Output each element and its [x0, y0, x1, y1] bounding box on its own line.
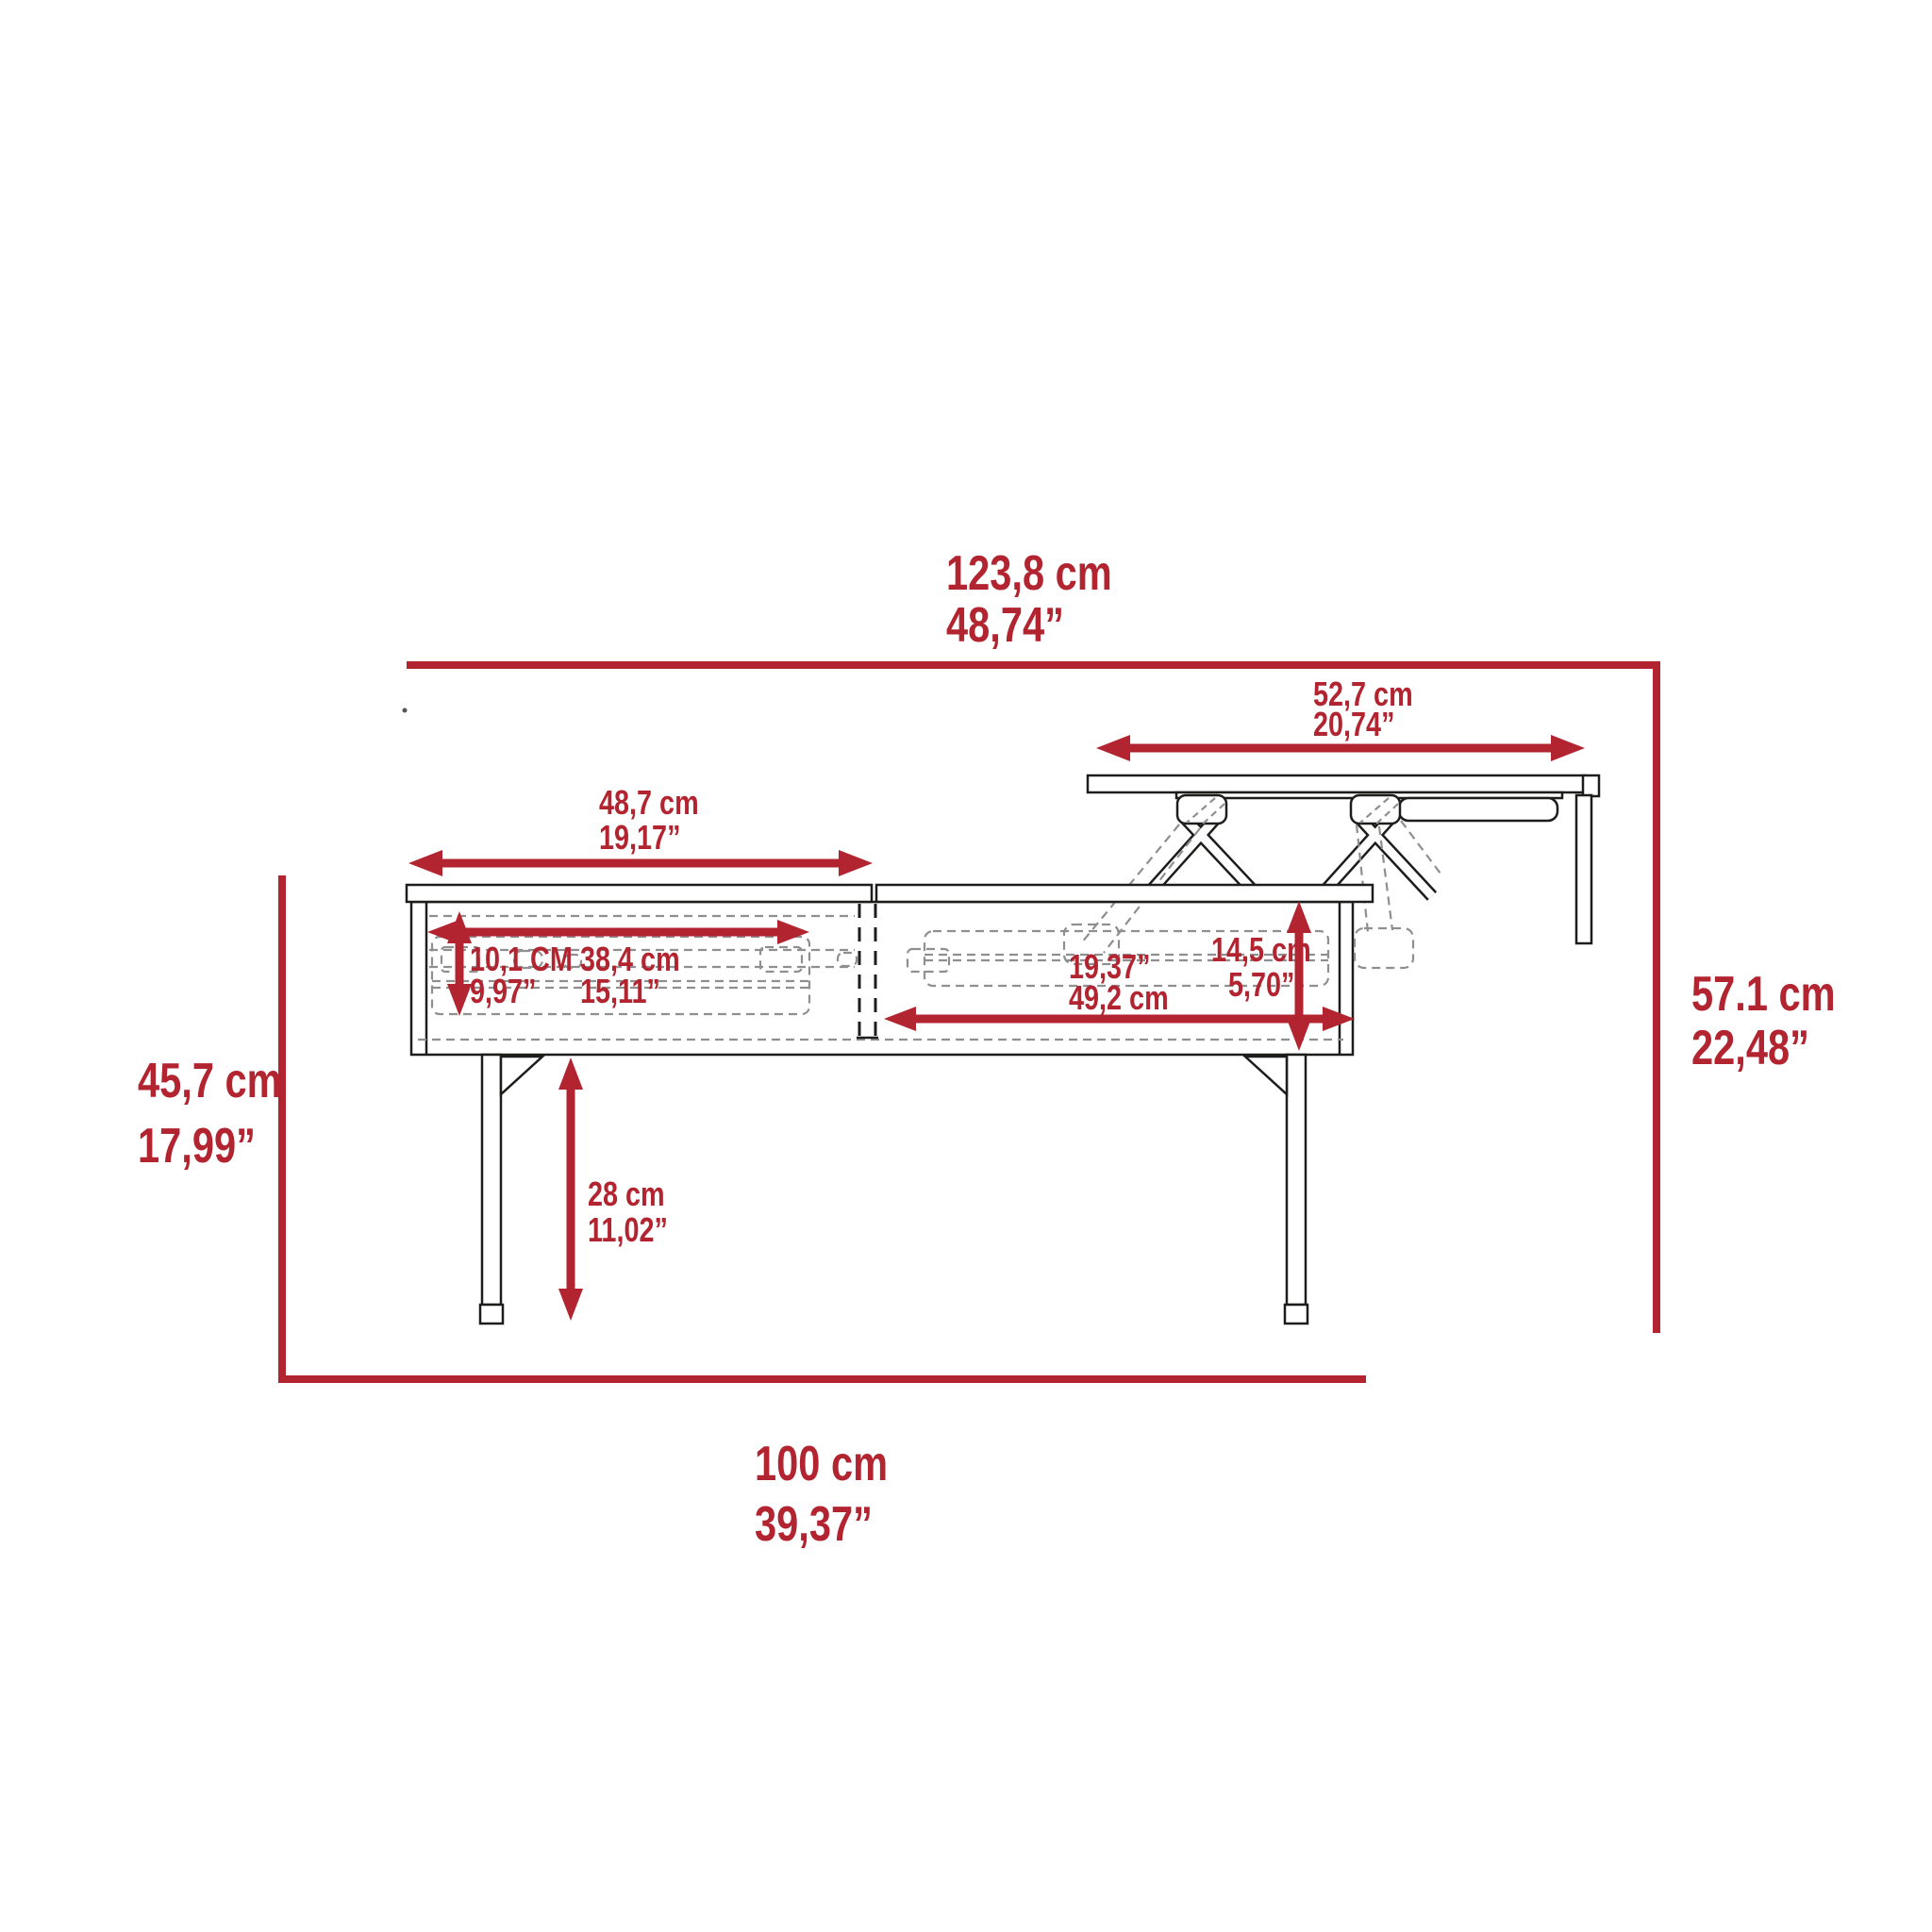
left-leg — [482, 1055, 501, 1305]
arrow-leg-height — [558, 1058, 583, 1321]
dim-fixed-top-width-cm: 48,7 cm — [599, 786, 699, 820]
right-leg — [1287, 1055, 1306, 1305]
dim-depth-in: 39,37” — [755, 1500, 873, 1549]
lift-top-under-panel — [1399, 798, 1557, 821]
lift-top-slab — [1088, 775, 1585, 792]
dim-overall-width-cm: 123,8 cm — [946, 549, 1112, 598]
dim-lift-top-width-in: 20,74” — [1313, 708, 1394, 741]
dim-closed-height-in: 17,99” — [138, 1122, 256, 1171]
dim-lift-rise-in: 5,70” — [1228, 968, 1294, 1002]
dim-fixed-top-width-in: 19,17” — [599, 821, 680, 855]
right-leg-bracket — [1245, 1057, 1287, 1094]
dim-closed-height-cm: 45,7 cm — [138, 1057, 282, 1106]
table-tops — [407, 885, 1373, 902]
dim-right-compartment-cm: 49,2 cm — [1069, 981, 1169, 1015]
dim-leg-height-in: 11,02” — [588, 1213, 668, 1247]
right-foot-cap — [1285, 1305, 1307, 1324]
dim-drawer-height-in: 9,97” — [470, 974, 536, 1008]
dim-lift-rise-cm: 14,5 cm — [1211, 933, 1311, 967]
dim-drawer-width-in: 15,11” — [580, 974, 660, 1008]
lift-top-end-cap — [1583, 775, 1599, 796]
stray-dot — [403, 708, 408, 713]
table-body — [411, 902, 1353, 1055]
dim-overall-width-in: 48,74” — [946, 601, 1064, 650]
left-leg-bracket — [501, 1057, 542, 1094]
table-diagram-svg — [0, 0, 1932, 1932]
dimension-diagram: 123,8 cm 48,74” 52,7 cm 20,74” 48,7 cm 1… — [0, 0, 1932, 1932]
lift-support-arm — [1576, 795, 1591, 943]
left-foot-cap — [480, 1305, 503, 1324]
dim-open-height-in: 22,48” — [1691, 1024, 1809, 1073]
dim-depth-cm: 100 cm — [755, 1440, 888, 1489]
dim-open-height-cm: 57.1 cm — [1691, 970, 1836, 1019]
dim-leg-height-cm: 28 cm — [588, 1177, 665, 1211]
